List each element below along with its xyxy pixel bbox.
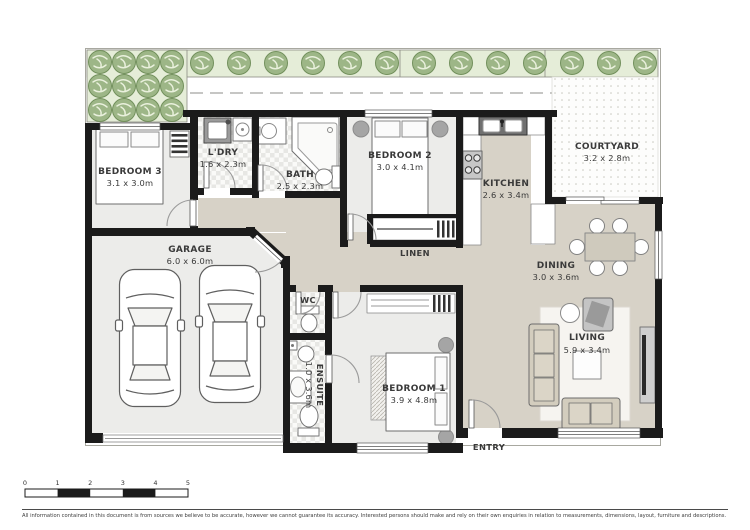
bedroom3-label: BEDROOM 3 [98, 167, 162, 177]
sliding-door-icon [566, 197, 639, 204]
kitchen-bench [531, 204, 555, 244]
disclaimer-text: All information contained in this docume… [22, 509, 728, 519]
chair-icon [613, 219, 628, 234]
wc-fixtures [300, 306, 319, 332]
bedroom3-dims: 3.1 x 3.0m [107, 178, 154, 188]
floorplan-drawing: BEDROOM 3 3.1 x 3.0m L'DRY 1.6 x 2.3m BA… [0, 0, 750, 530]
dining-label: DINING [537, 261, 575, 271]
pillow-icon [375, 121, 400, 137]
courtyard-label: COURTYARD [575, 142, 639, 152]
kitchen-dims: 2.6 x 3.4m [483, 190, 530, 200]
wardrobe-icon [367, 294, 455, 313]
window-icon [655, 231, 662, 279]
bedroom1-label: BEDROOM 1 [382, 384, 446, 394]
tv-icon [642, 335, 646, 395]
ensuite-dims: 1.0 x 3.6m [304, 362, 314, 409]
laundry-label: L'DRY [208, 148, 239, 158]
scale-tick: 4 [153, 479, 157, 487]
scale-tick: 3 [121, 479, 125, 487]
round-table-icon [561, 304, 580, 323]
chair-icon [570, 240, 585, 255]
window-icon [357, 443, 428, 453]
car-icon [196, 266, 265, 403]
bedroom2-label: BEDROOM 2 [368, 151, 432, 161]
toilet-icon [300, 306, 319, 314]
courtyard-dims: 3.2 x 2.8m [584, 153, 631, 163]
bath-label: BATH [286, 170, 314, 180]
floorplan-page: BEDROOM 3 3.1 x 3.0m L'DRY 1.6 x 2.3m BA… [0, 0, 750, 530]
laundry-fixtures [204, 118, 252, 143]
chair-icon [613, 261, 628, 276]
side-table-icon [439, 338, 454, 353]
pillow-icon [131, 132, 159, 147]
laundry-dims: 1.6 x 2.3m [200, 159, 247, 169]
wc-label: WC [300, 295, 316, 305]
car-icon [116, 270, 185, 407]
scale-tick: 5 [186, 479, 190, 487]
scale-bar: 0 1 2 3 4 5 [23, 479, 190, 497]
kitchen-label: KITCHEN [483, 179, 529, 189]
dining-dims: 3.0 x 3.6m [533, 272, 580, 282]
side-table-icon [432, 121, 448, 137]
basin-icon [262, 124, 277, 139]
bedroom2-dims: 3.0 x 4.1m [377, 162, 424, 172]
scale-tick: 2 [88, 479, 92, 487]
garage-dims: 6.0 x 6.0m [167, 256, 214, 266]
garage-door [103, 435, 283, 442]
toilet-icon [332, 166, 340, 188]
window-icon [100, 123, 160, 130]
scale-tick: 1 [56, 479, 60, 487]
coffee-table-icon [573, 351, 601, 379]
bath-dims: 2.5 x 2.3m [277, 181, 324, 191]
hallway-floor [198, 198, 347, 232]
courtyard-floor [552, 77, 658, 197]
living-label: LIVING [569, 333, 605, 343]
basin-icon [298, 346, 314, 362]
window-icon [365, 110, 432, 117]
entry-label: ENTRY [473, 442, 506, 452]
chair-icon [590, 219, 605, 234]
living-dims: 5.9 x 3.4m [564, 345, 611, 355]
linen-label: LINEN [400, 248, 430, 258]
ensuite-label: ENSUITE [315, 364, 325, 407]
chair-icon [590, 261, 605, 276]
side-table-icon [353, 121, 369, 137]
pillow-icon [402, 121, 427, 137]
side-table-icon [439, 430, 454, 445]
ensuite-label-group: ENSUITE 1.0 x 3.6m [304, 362, 325, 409]
chair-icon [634, 240, 649, 255]
bedroom1-dims: 3.9 x 4.8m [391, 395, 438, 405]
scale-tick: 0 [23, 479, 27, 487]
pillow-icon [100, 132, 128, 147]
dining-table-icon [585, 233, 635, 261]
garage-label: GARAGE [168, 245, 212, 255]
window-icon [558, 428, 640, 438]
